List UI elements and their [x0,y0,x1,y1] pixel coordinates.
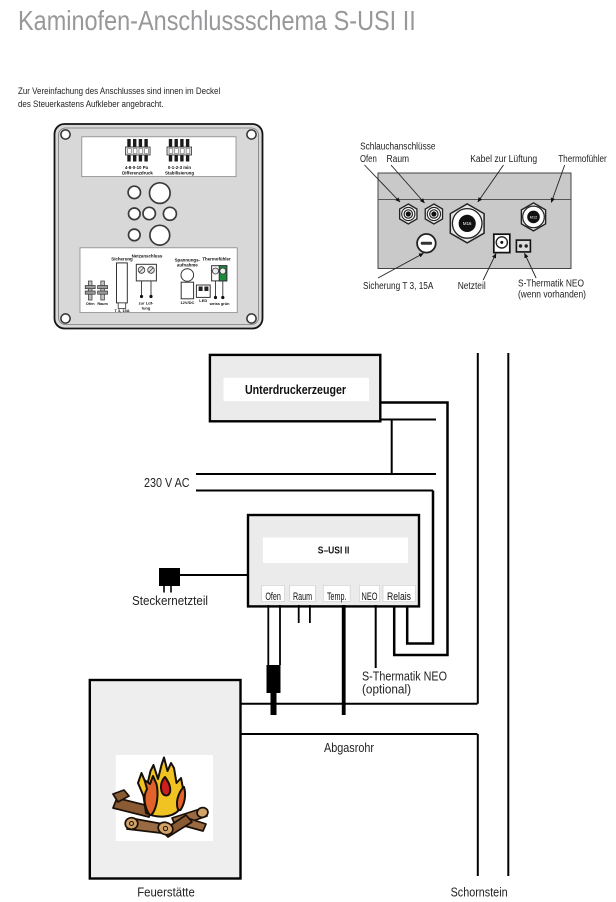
svg-text:0-1-2-3 min: 0-1-2-3 min [168,165,191,170]
svg-text:Stabilisierung: Stabilisierung [165,171,194,176]
svg-text:Sicherung T 3, 15A: Sicherung T 3, 15A [363,281,434,292]
svg-text:S–USI II: S–USI II [318,546,350,557]
svg-text:230 V AC: 230 V AC [144,475,190,490]
svg-text:Ofen: Ofen [360,154,377,165]
svg-text:Ofen: Ofen [86,302,95,306]
svg-text:Thermofühler: Thermofühler [202,257,231,262]
svg-text:Feuerstätte: Feuerstätte [137,885,195,900]
svg-text:12V/DC: 12V/DC [180,300,194,305]
svg-text:Differenzdruck: Differenzdruck [122,171,153,176]
svg-text:Netzanschluss: Netzanschluss [132,254,163,259]
svg-text:LED: LED [199,298,207,303]
svg-text:tung: tung [142,306,151,311]
svg-text:Schornstein: Schornstein [451,885,508,900]
svg-text:Kabel zur Lüftung: Kabel zur Lüftung [470,154,537,165]
svg-text:(optional): (optional) [362,682,411,697]
svg-text:Temp.: Temp. [327,591,347,603]
svg-text:Raum: Raum [387,154,410,165]
svg-text:Abgasrohr: Abgasrohr [324,740,375,755]
svg-text:weiss grün: weiss grün [209,302,231,306]
svg-text:(wenn vorhanden): (wenn vorhanden) [518,290,586,301]
svg-text:Thermofühler: Thermofühler [558,154,607,165]
svg-text:aufnahme: aufnahme [177,263,198,268]
svg-text:T 3, 15A: T 3, 15A [114,308,129,313]
svg-text:Netzteil: Netzteil [458,281,486,292]
svg-text:NEO: NEO [362,591,378,603]
svg-text:S-Thermatik NEO: S-Thermatik NEO [518,279,584,290]
svg-text:Raum: Raum [293,591,312,603]
svg-text:Raum: Raum [97,302,108,306]
svg-text:Schlauchanschlüsse: Schlauchanschlüsse [360,142,435,153]
svg-text:Sicherung: Sicherung [111,257,133,262]
svg-text:4-8-0-10 Pa: 4-8-0-10 Pa [125,165,149,170]
svg-text:Ofen: Ofen [265,591,281,603]
svg-text:Relais: Relais [387,591,411,603]
svg-text:M16: M16 [463,221,472,226]
svg-text:Unterdruckerzeuger: Unterdruckerzeuger [245,382,346,397]
svg-text:Steckernetzteil: Steckernetzteil [132,593,208,608]
svg-text:M12: M12 [530,215,537,219]
